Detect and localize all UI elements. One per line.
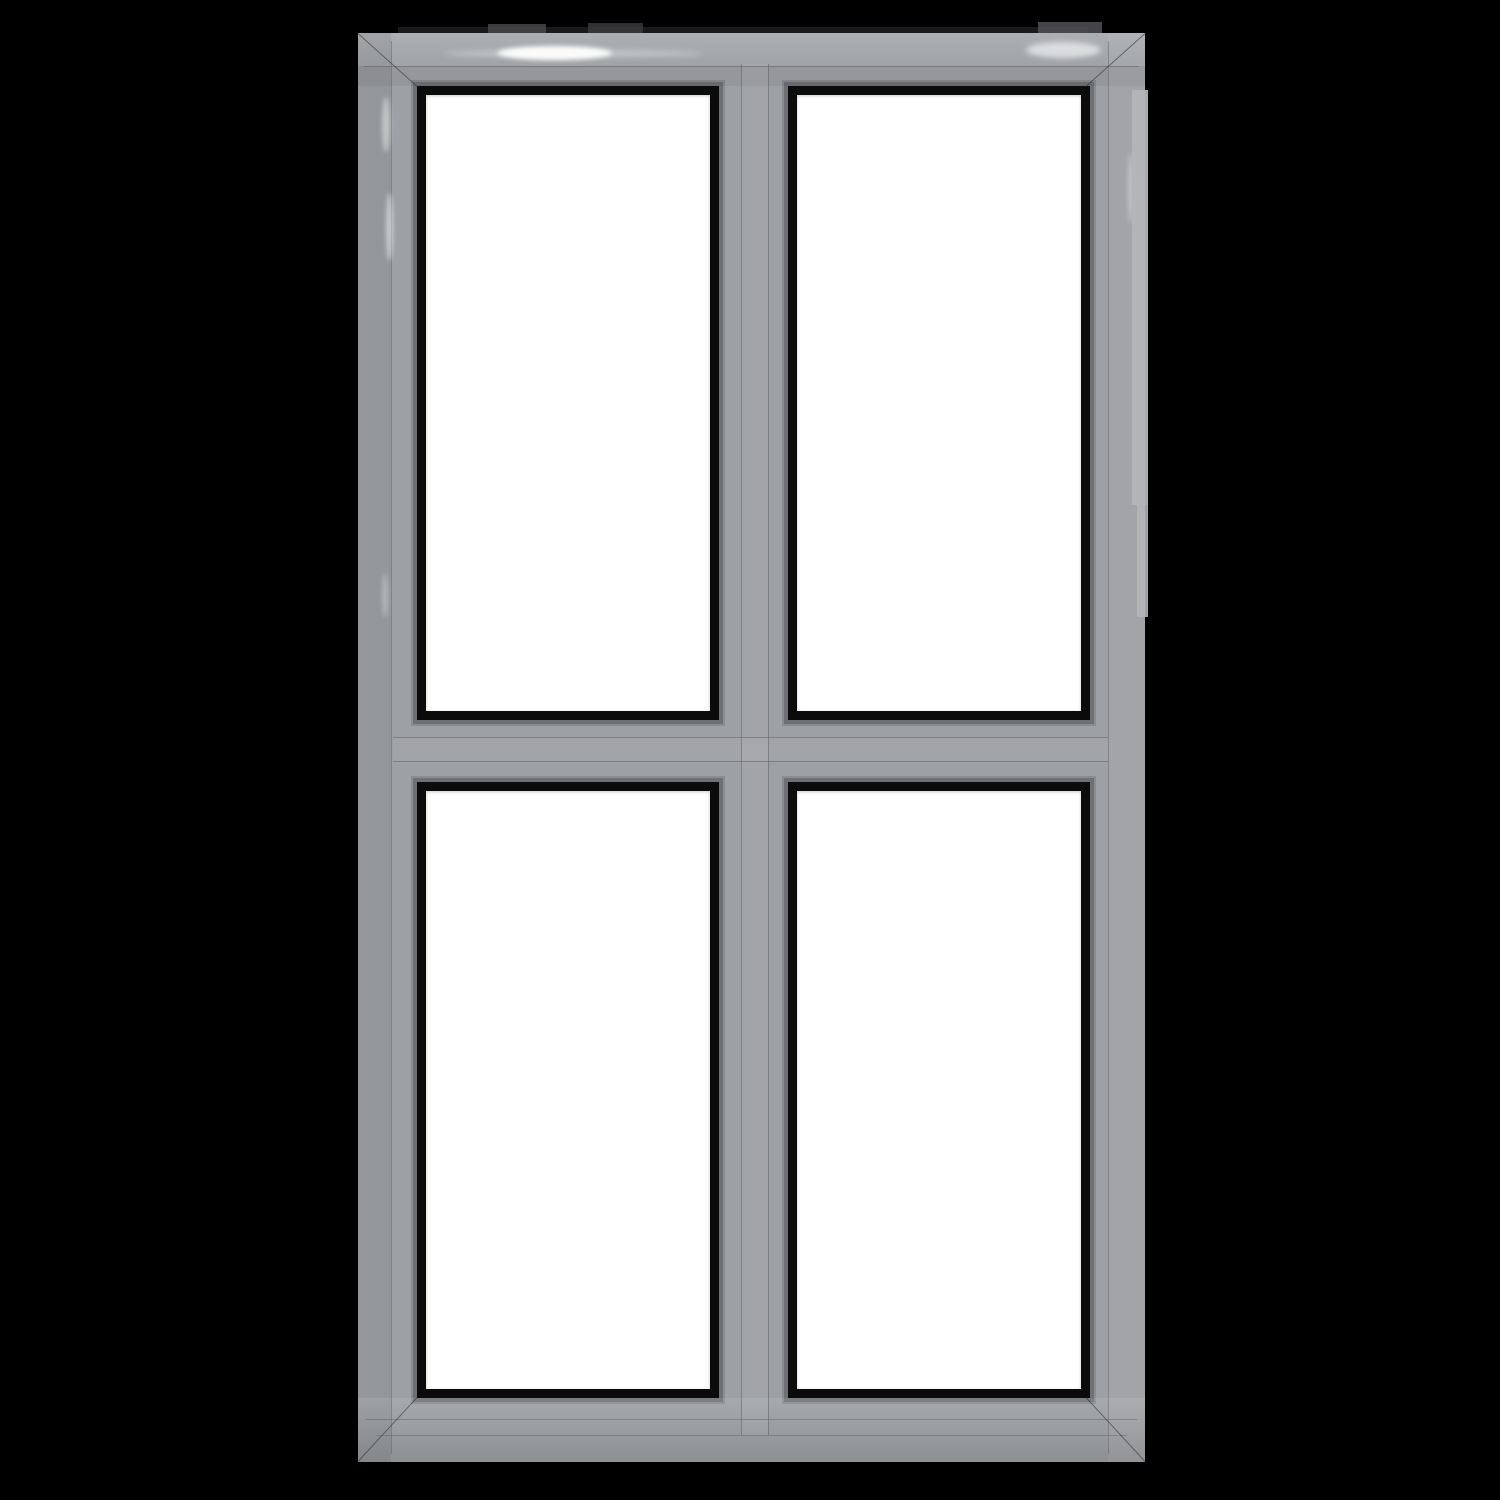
right-edge-reflection-band — [1132, 90, 1148, 505]
glass-pane-top-right — [788, 86, 1090, 720]
bottom-sill-face — [358, 1398, 1145, 1462]
top-edge-artifact-3 — [1038, 22, 1102, 33]
transom-groove-upper — [393, 737, 1108, 738]
window-frame — [358, 33, 1145, 1462]
mullion-center-strip — [741, 64, 768, 1435]
mullion-groove-left — [741, 64, 742, 1435]
top-frame-inner-face — [358, 66, 1145, 86]
miter-joint-top-right — [1085, 33, 1145, 87]
glass-pane-bottom-right — [788, 782, 1090, 1398]
glass-pane-top-left — [417, 86, 719, 720]
transom-groove-lower — [393, 761, 1108, 762]
top-edge-artifact-1 — [488, 24, 546, 33]
right-edge-reflection-band-lower — [1137, 505, 1148, 617]
bottom-sill-seam-line-1 — [366, 1419, 1137, 1420]
transom-center-strip — [393, 737, 1108, 761]
miter-joint-bottom-left — [358, 1397, 418, 1462]
right-frame-seam-line — [1108, 41, 1109, 1454]
glass-pane-bottom-left — [417, 782, 719, 1398]
miter-joint-top-left — [358, 33, 418, 87]
gloss-highlight-top-right — [1026, 42, 1101, 58]
mullion-groove-right — [768, 64, 769, 1435]
top-frame-seam-line — [364, 66, 1139, 67]
gloss-highlight-left-1 — [382, 97, 390, 152]
bottom-sill-seam-line-2 — [376, 1435, 1127, 1436]
product-photo-canvas — [0, 0, 1500, 1500]
gloss-highlight-top-wide — [443, 50, 703, 57]
miter-joint-bottom-right — [1086, 1397, 1146, 1462]
gloss-highlight-left-3 — [382, 573, 388, 618]
top-edge-artifact-2 — [588, 23, 643, 33]
gloss-highlight-left-2 — [386, 193, 393, 261]
